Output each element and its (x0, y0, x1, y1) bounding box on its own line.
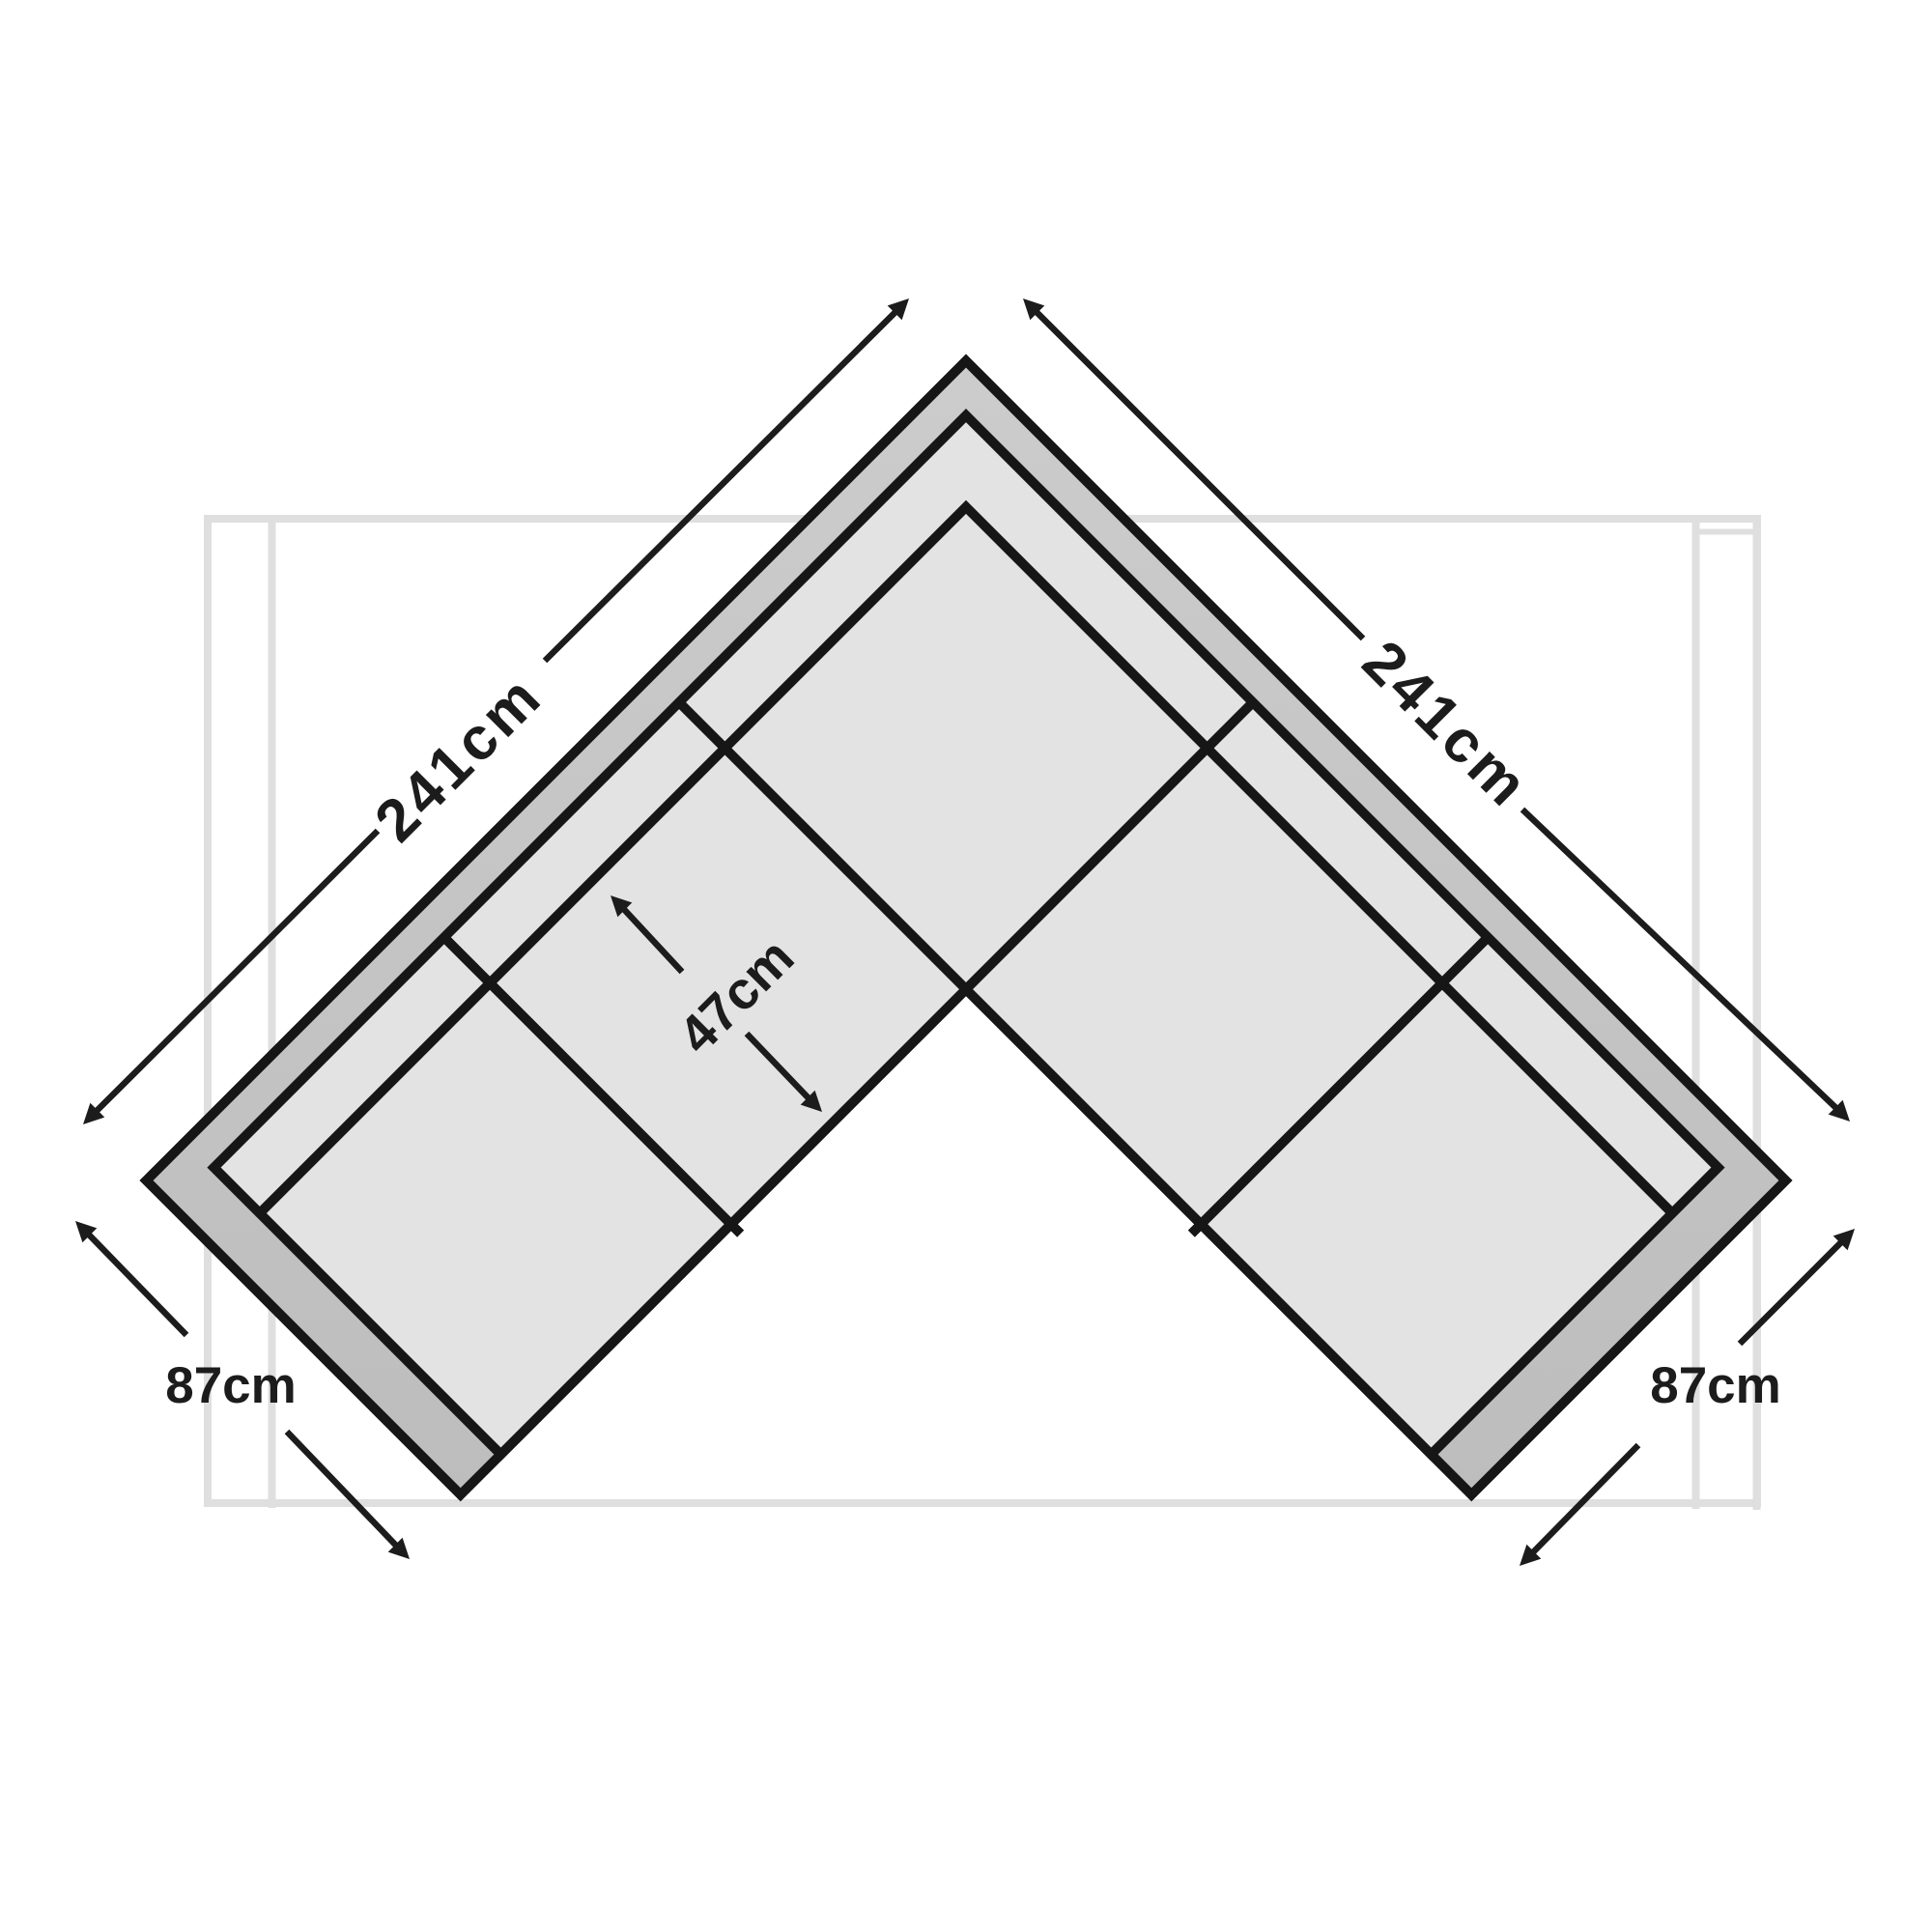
svg-text:87cm: 87cm (1650, 1357, 1781, 1414)
svg-text:87cm: 87cm (165, 1357, 297, 1414)
